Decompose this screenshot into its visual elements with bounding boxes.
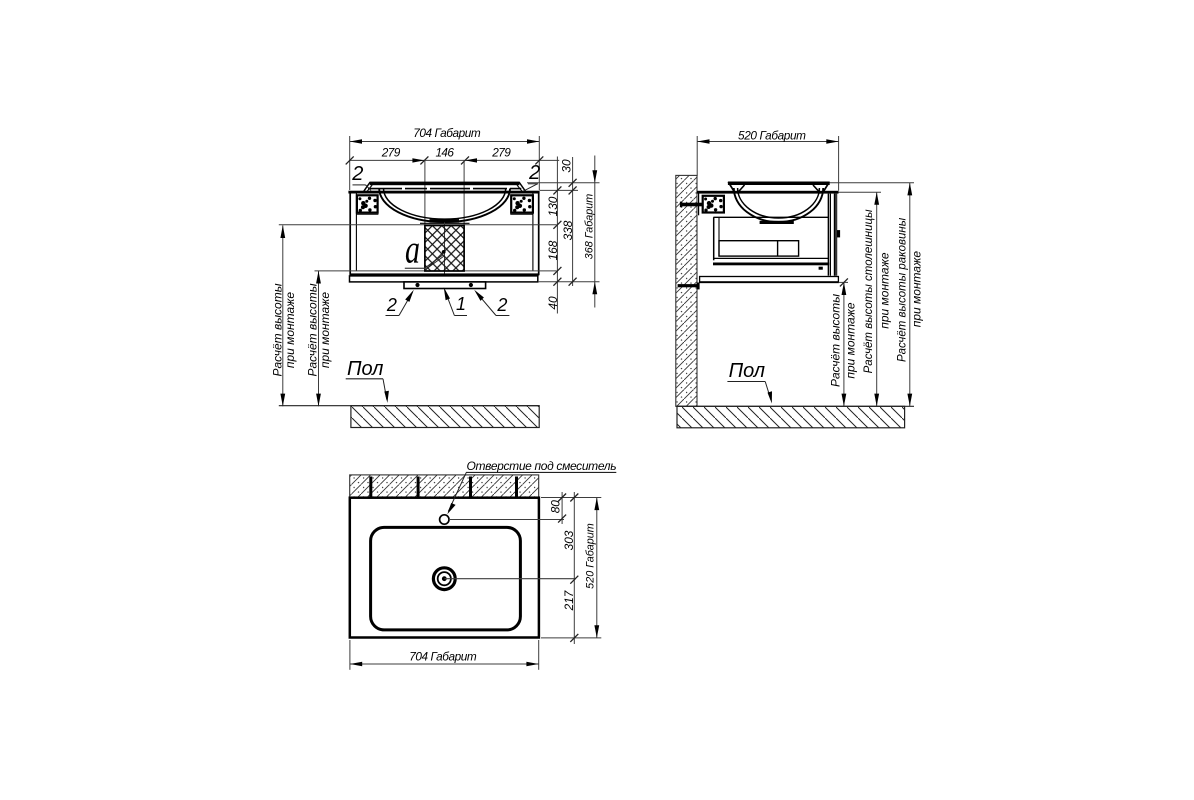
svg-text:Пол: Пол (347, 358, 383, 380)
svg-text:2: 2 (351, 163, 363, 185)
svg-text:Расчёт высоты раковины: Расчёт высоты раковины (897, 217, 909, 362)
svg-text:704 Габарит: 704 Габарит (409, 650, 477, 664)
svg-text:2: 2 (528, 162, 540, 184)
svg-text:30: 30 (559, 159, 573, 173)
svg-text:2: 2 (386, 295, 397, 315)
svg-text:279: 279 (381, 146, 401, 160)
svg-text:2: 2 (496, 295, 507, 315)
svg-text:168: 168 (546, 240, 560, 260)
svg-text:520 Габарит: 520 Габарит (585, 523, 597, 589)
svg-text:при монтаже: при монтаже (877, 252, 891, 329)
svg-text:368 Габарит: 368 Габарит (583, 194, 595, 260)
svg-text:338: 338 (561, 220, 575, 240)
svg-text:Пол: Пол (729, 360, 765, 382)
svg-text:704 Габарит: 704 Габарит (413, 126, 481, 140)
svg-text:130: 130 (546, 196, 560, 216)
svg-text:520 Габарит: 520 Габарит (738, 129, 806, 143)
svg-text:при монтаже: при монтаже (910, 251, 924, 328)
svg-text:при монтаже: при монтаже (318, 292, 332, 369)
svg-text:Отверстие под смеситель: Отверстие под смеситель (467, 459, 617, 473)
svg-text:a: a (405, 227, 420, 272)
svg-text:217: 217 (562, 590, 576, 611)
svg-text:40: 40 (546, 296, 560, 310)
svg-text:303: 303 (562, 530, 576, 550)
svg-text:Расчёт высоты: Расчёт высоты (828, 294, 842, 387)
svg-text:80: 80 (548, 500, 562, 514)
svg-text:при монтаже: при монтаже (844, 302, 858, 379)
svg-text:Расчёт высоты столешницы: Расчёт высоты столешницы (863, 209, 875, 373)
svg-text:1: 1 (456, 294, 466, 314)
svg-text:146: 146 (435, 146, 454, 160)
svg-text:279: 279 (491, 146, 511, 160)
svg-text:при монтаже: при монтаже (283, 292, 297, 369)
